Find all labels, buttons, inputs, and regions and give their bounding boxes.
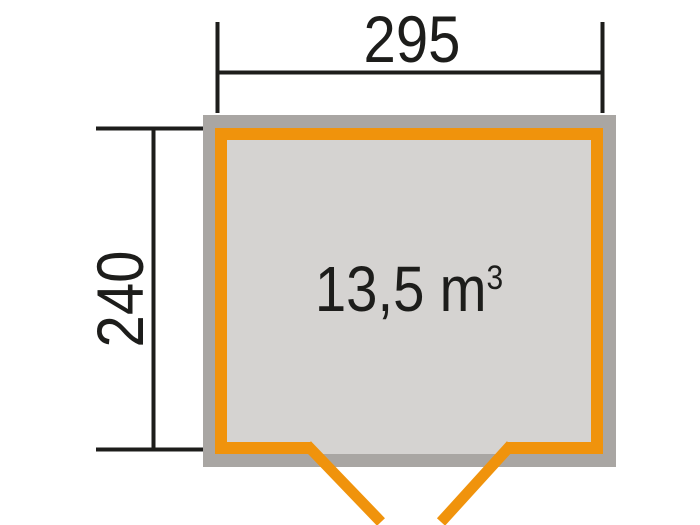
volume-unit: m (440, 253, 487, 325)
floor-plan-diagram: 295 240 13,5m3 (0, 0, 700, 525)
volume-label: 13,5m3 (277, 253, 541, 325)
volume-exponent: 3 (487, 259, 504, 297)
volume-value: 13,5 (315, 253, 425, 325)
width-dimension-label: 295 (324, 6, 500, 72)
depth-dimension-label: 240 (87, 211, 153, 387)
door-opening (310, 440, 508, 454)
